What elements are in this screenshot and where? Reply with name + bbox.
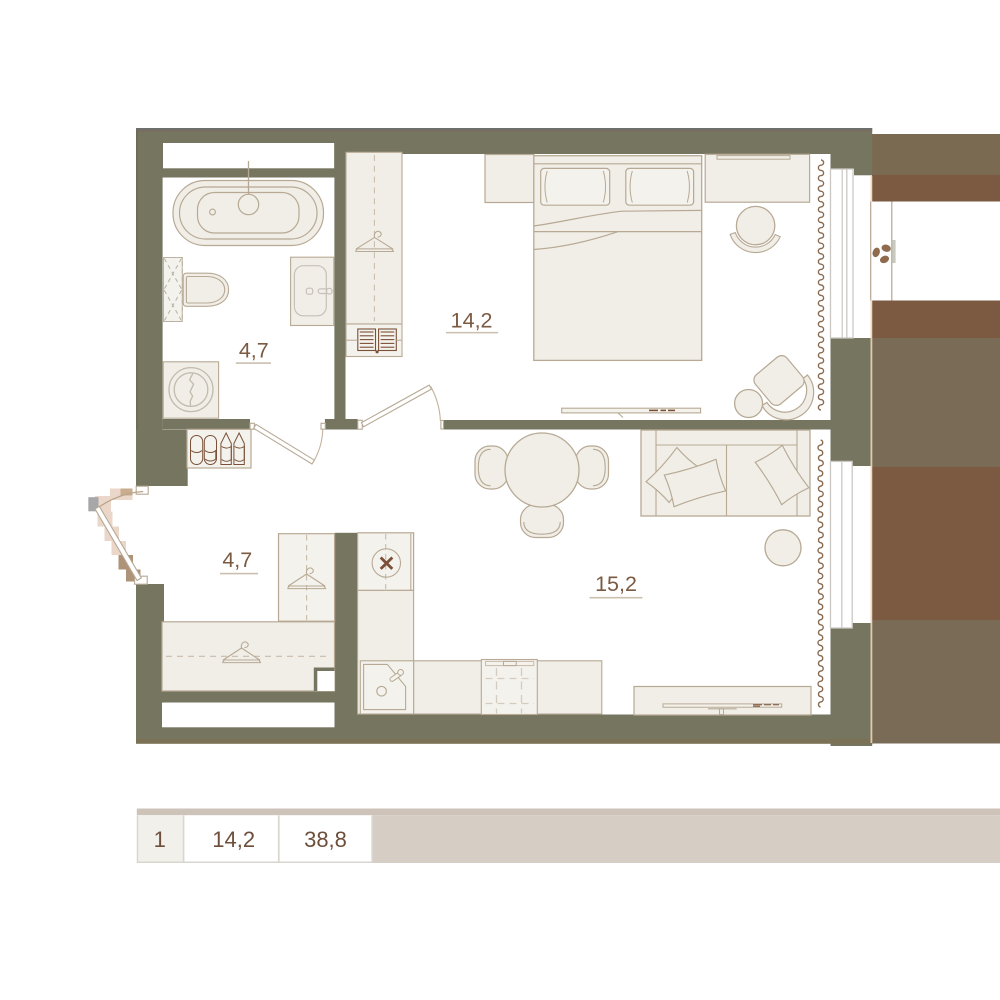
svg-text:38,8: 38,8 (304, 827, 347, 852)
svg-text:15,2: 15,2 (595, 572, 637, 596)
svg-text:14,2: 14,2 (451, 308, 493, 332)
svg-text:4,7: 4,7 (239, 339, 269, 363)
svg-text:1: 1 (154, 827, 166, 852)
svg-text:4,7: 4,7 (222, 548, 252, 572)
svg-text:14,2: 14,2 (212, 827, 255, 852)
